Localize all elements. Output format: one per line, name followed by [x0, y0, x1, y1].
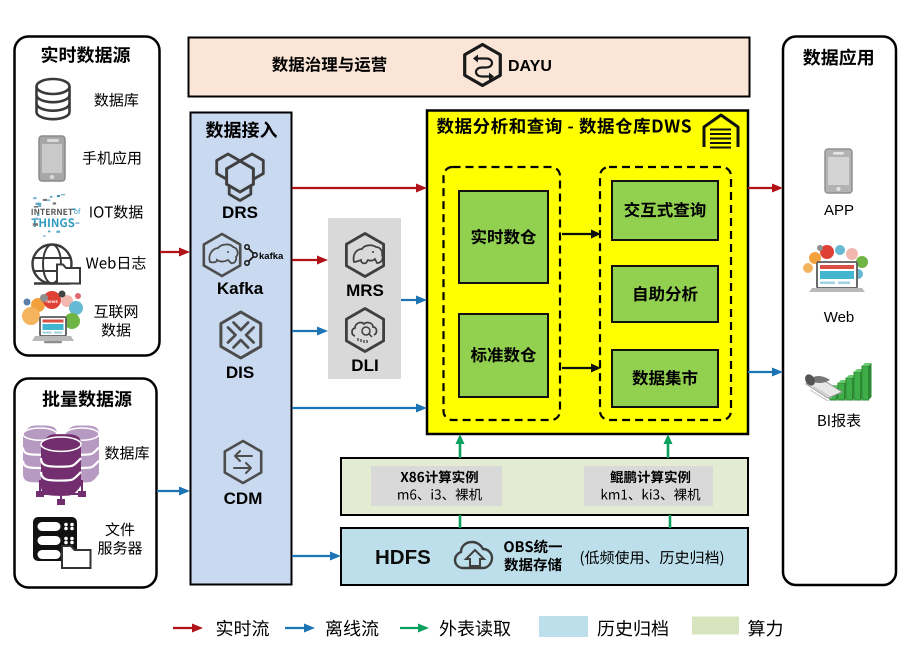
svg-text:MRS: MRS: [346, 281, 384, 300]
svg-text:DRS: DRS: [222, 203, 258, 222]
svg-text:HDFS: HDFS: [375, 546, 431, 569]
svg-text:Web: Web: [824, 309, 855, 326]
svg-text:DAYU: DAYU: [508, 58, 552, 75]
svg-text:Kafka: Kafka: [217, 279, 264, 298]
svg-text:CDM: CDM: [224, 489, 263, 508]
svg-text:kafka: kafka: [259, 251, 284, 262]
svg-text:APP: APP: [824, 202, 854, 219]
svg-text:DLI: DLI: [351, 356, 378, 375]
svg-text:DIS: DIS: [226, 363, 254, 382]
